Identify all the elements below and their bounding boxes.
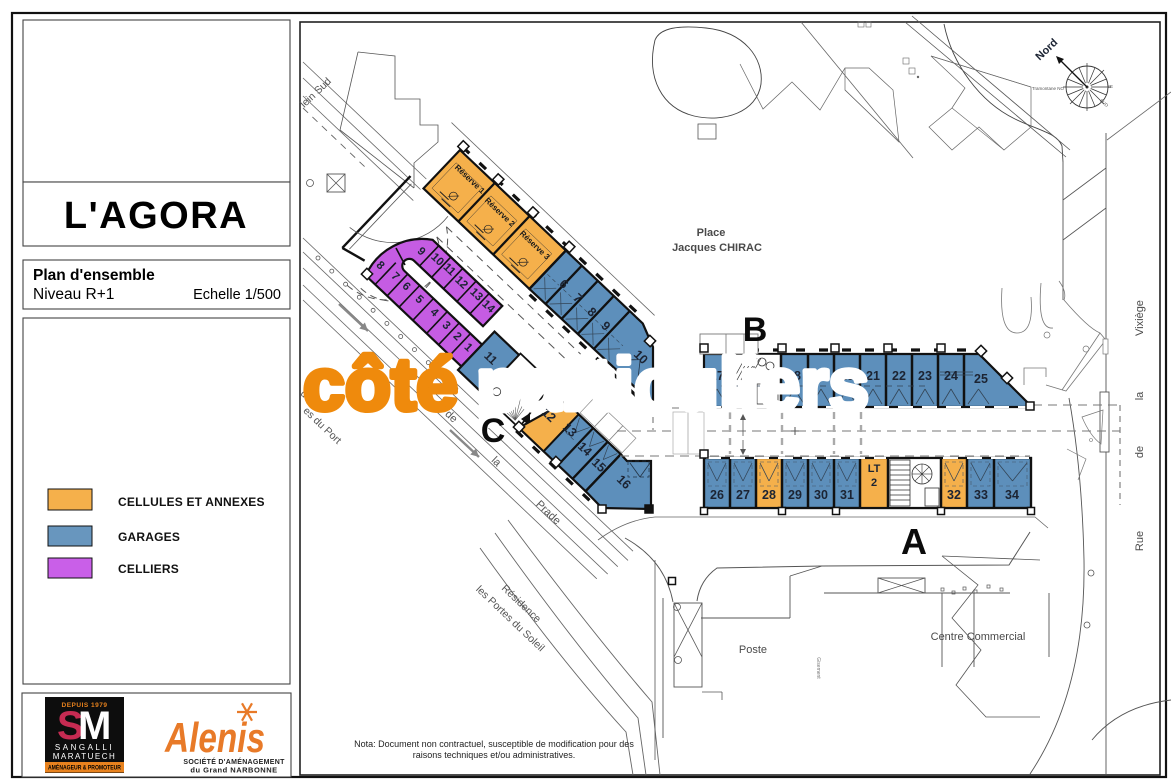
svg-text:du Grand NARBONNE: du Grand NARBONNE: [190, 766, 277, 775]
svg-text:24: 24: [944, 369, 958, 383]
svg-text:Niveau R+1: Niveau R+1: [33, 286, 114, 303]
svg-text:31: 31: [840, 488, 854, 502]
svg-text:la: la: [1134, 391, 1146, 400]
svg-text:AMÉNAGEUR & PROMOTEUR: AMÉNAGEUR & PROMOTEUR: [48, 764, 122, 772]
svg-text:23: 23: [918, 369, 932, 383]
svg-text:29: 29: [788, 488, 802, 502]
svg-text:SE: SE: [1107, 84, 1113, 89]
svg-text:2: 2: [871, 477, 877, 489]
svg-text:28: 28: [762, 488, 776, 502]
svg-text:32: 32: [947, 488, 961, 502]
svg-text:CELLIERS: CELLIERS: [118, 562, 179, 576]
svg-text:côté: côté: [303, 343, 458, 426]
svg-text:34: 34: [1005, 488, 1019, 502]
svg-text:de: de: [1134, 446, 1146, 458]
svg-text:M: M: [78, 704, 111, 748]
svg-text:Tramontane NO: Tramontane NO: [1032, 86, 1065, 91]
svg-text:Plan d'ensemble: Plan d'ensemble: [33, 267, 155, 284]
svg-text:A: A: [901, 521, 927, 562]
svg-text:22: 22: [892, 369, 906, 383]
svg-text:GARAGES: GARAGES: [118, 530, 180, 544]
svg-text:25: 25: [974, 372, 988, 386]
svg-text:SANGALLI: SANGALLI: [55, 743, 114, 752]
svg-text:27: 27: [736, 488, 750, 502]
svg-text:Jacques CHIRAC: Jacques CHIRAC: [672, 242, 762, 254]
svg-text:26: 26: [710, 488, 724, 502]
svg-text:MARATUECH: MARATUECH: [53, 752, 117, 761]
svg-text:Alenis: Alenis: [164, 714, 265, 761]
svg-text:L'AGORA: L'AGORA: [64, 195, 248, 237]
svg-text:Centre Commercial: Centre Commercial: [931, 631, 1026, 643]
svg-text:C: C: [481, 412, 506, 450]
svg-text:raisons techniques et/ou admin: raisons techniques et/ou administratives…: [413, 750, 576, 760]
svg-text:Echelle 1/500: Echelle 1/500: [193, 287, 281, 303]
svg-text:Vixiège: Vixiège: [1134, 300, 1146, 336]
svg-text:Nota: Document non contractuel: Nota: Document non contractuel, suscepti…: [354, 739, 634, 749]
svg-text:Rue: Rue: [1134, 531, 1146, 551]
svg-text:LT: LT: [868, 463, 881, 475]
svg-text:Gisement: Gisement: [815, 657, 821, 679]
svg-text:Poste: Poste: [739, 644, 767, 656]
svg-text:particuliers: particuliers: [476, 343, 869, 426]
svg-text:CELLULES ET ANNEXES: CELLULES ET ANNEXES: [118, 495, 265, 509]
svg-text:B: B: [743, 311, 768, 349]
svg-text:30: 30: [814, 488, 828, 502]
svg-text:33: 33: [974, 488, 988, 502]
svg-text:Place: Place: [697, 227, 726, 239]
